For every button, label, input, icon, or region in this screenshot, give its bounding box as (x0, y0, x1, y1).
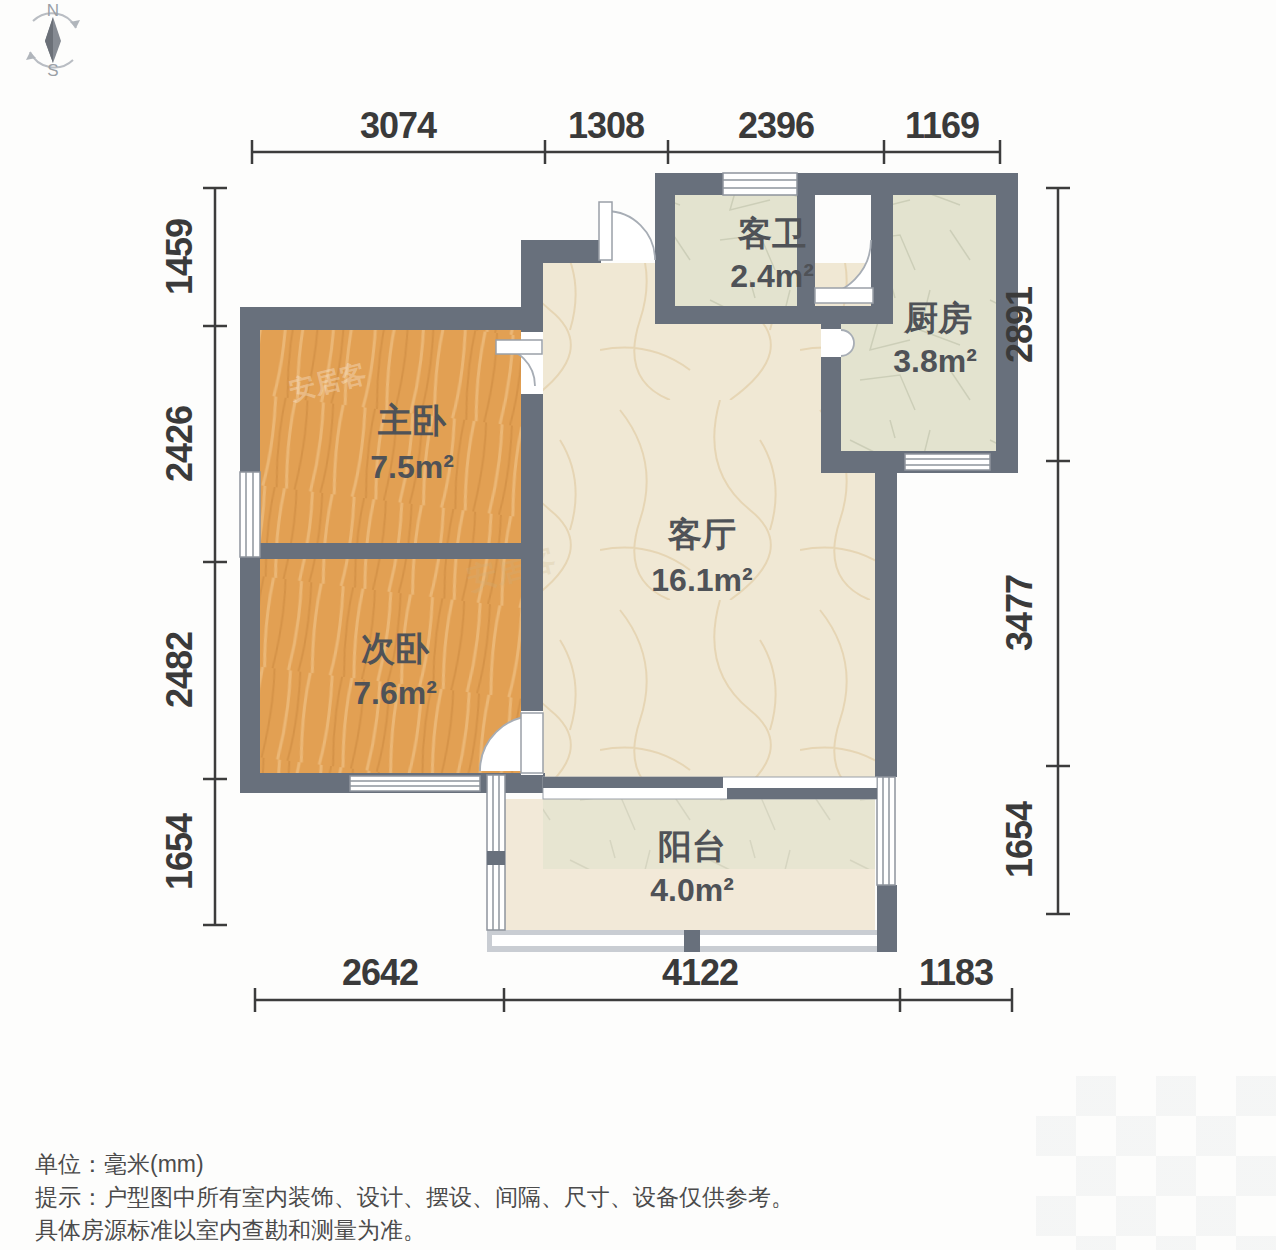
area-master-bedroom: 7.5m² (370, 449, 454, 485)
tip-text1: 户型图中所有室内装饰、设计、摆设、间隔、尺寸、设备仅供参考。 (104, 1184, 794, 1210)
window-bathroom-top (723, 173, 797, 195)
window-kitchen-bottom (905, 454, 990, 470)
label-balcony: 阳台 (658, 827, 726, 865)
area-balcony: 4.0m² (650, 872, 734, 908)
area-living-room: 16.1m² (651, 562, 752, 598)
tip-text2: 具体房源标准以室内查勘和测量为准。 (35, 1217, 426, 1243)
compass-north-label: N (47, 1, 59, 20)
compass: N S (26, 1, 80, 80)
compass-needle-icon (45, 17, 53, 63)
label-kitchen: 厨房 (903, 299, 972, 337)
area-second-bedroom: 7.6m² (353, 675, 437, 711)
dimension-left: 1459 2426 2482 1654 (159, 188, 227, 925)
dim-left-4: 1654 (159, 813, 200, 890)
footer-notes: 单位：毫米(mm) 提示：户型图中所有室内装饰、设计、摆设、间隔、尺寸、设备仅供… (35, 1148, 794, 1247)
compass-south-label: S (47, 61, 58, 80)
dim-right-3: 1654 (999, 801, 1040, 878)
label-guest-bathroom: 客卫 (737, 214, 806, 252)
unit-label: 单位： (35, 1151, 104, 1177)
footer-tip-line2: 具体房源标准以室内查勘和测量为准。 (35, 1214, 794, 1247)
dim-right-1: 2891 (999, 286, 1040, 363)
label-second-bedroom: 次卧 (361, 629, 430, 667)
dim-bottom-1: 2642 (342, 952, 418, 993)
watermark-grid (1036, 1076, 1276, 1250)
kitchen-door (821, 329, 854, 357)
dimension-right: 2891 3477 1654 (999, 188, 1070, 914)
window-master-left (240, 472, 260, 557)
footer-unit-line: 单位：毫米(mm) (35, 1148, 794, 1181)
dim-left-3: 2482 (159, 632, 200, 708)
window-balcony-left (487, 775, 505, 930)
dim-top-4: 1169 (905, 105, 979, 146)
entrance-door (599, 202, 655, 260)
window-second-bottom (350, 776, 480, 791)
window-balcony-right (877, 777, 895, 885)
dim-top-3: 2396 (738, 105, 814, 146)
dim-left-2: 2426 (159, 406, 200, 482)
dim-top-1: 3074 (360, 105, 437, 146)
area-guest-bathroom: 2.4m² (730, 258, 814, 294)
label-master-bedroom: 主卧 (377, 401, 447, 439)
dim-bottom-3: 1183 (919, 952, 993, 993)
dim-bottom-2: 4122 (662, 952, 738, 993)
floor-plan-page: 安居客 安居客 (0, 0, 1276, 1250)
dim-top-2: 1308 (568, 105, 644, 146)
area-kitchen: 3.8m² (893, 343, 977, 379)
tip-label: 提示： (35, 1184, 104, 1210)
dim-right-2: 3477 (999, 575, 1040, 651)
unit-value: 毫米(mm) (104, 1151, 204, 1177)
dimension-top: 3074 1308 2396 1169 (252, 105, 1000, 164)
label-living-room: 客厅 (667, 515, 736, 553)
floor-plan-svg: 安居客 安居客 (0, 0, 1276, 1250)
dimension-bottom: 2642 4122 1183 (255, 952, 1012, 1012)
balcony-rail (487, 930, 897, 952)
sliding-door-balcony (543, 777, 877, 799)
dim-left-1: 1459 (159, 219, 200, 295)
footer-tip-line1: 提示：户型图中所有室内装饰、设计、摆设、间隔、尺寸、设备仅供参考。 (35, 1181, 794, 1214)
